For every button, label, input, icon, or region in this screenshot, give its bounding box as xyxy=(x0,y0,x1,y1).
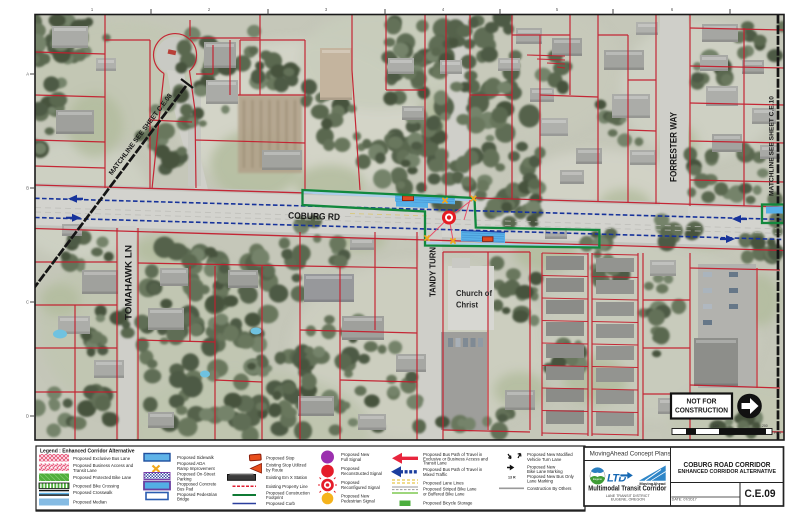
svg-text:Proposed Bike Crossing: Proposed Bike Crossing xyxy=(73,483,120,488)
svg-text:Ramp Improvement: Ramp Improvement xyxy=(177,466,216,471)
svg-text:FORRESTER WAY: FORRESTER WAY xyxy=(669,112,679,182)
svg-text:Pedestrian Signal: Pedestrian Signal xyxy=(341,498,375,503)
svg-text:Transit Lane: Transit Lane xyxy=(423,461,447,466)
svg-text:Proposed Exclusive Bus Lane: Proposed Exclusive Bus Lane xyxy=(73,456,131,461)
svg-text:Feet: Feet xyxy=(774,431,781,435)
svg-text:DATE: 07/2017: DATE: 07/2017 xyxy=(672,498,697,502)
svg-text:13 R: 13 R xyxy=(508,476,516,480)
svg-text:Existing Em X Station: Existing Em X Station xyxy=(266,475,308,480)
svg-text:Existing Property Line: Existing Property Line xyxy=(266,484,308,489)
svg-text:CONSTRUCTION: CONSTRUCTION xyxy=(675,406,728,415)
svg-text:Vehicle Turn Lane: Vehicle Turn Lane xyxy=(527,457,562,462)
svg-text:Full Signal: Full Signal xyxy=(341,457,361,462)
svg-text:Proposed Bicycle Storage: Proposed Bicycle Storage xyxy=(423,501,473,506)
svg-text:Transit Lane: Transit Lane xyxy=(73,468,97,473)
svg-text:Eugene: Eugene xyxy=(593,477,603,481)
svg-text:TOMAHAWK LN: TOMAHAWK LN xyxy=(124,245,134,320)
svg-text:Bus Pad: Bus Pad xyxy=(177,486,194,491)
svg-text:Footprint: Footprint xyxy=(266,495,284,500)
svg-text:Proposed Sidewalk: Proposed Sidewalk xyxy=(177,455,215,460)
svg-text:Legend : Enhanced Corridor Alt: Legend : Enhanced Corridor Alternative xyxy=(40,449,135,455)
svg-text:Bridge: Bridge xyxy=(177,497,190,502)
svg-text:A: A xyxy=(26,72,29,77)
svg-text:100: 100 xyxy=(713,424,719,428)
svg-text:200: 200 xyxy=(762,424,768,428)
svg-text:NOT FOR: NOT FOR xyxy=(687,397,717,406)
svg-text:B: B xyxy=(26,186,29,191)
svg-text:COBURG RD: COBURG RD xyxy=(288,211,341,223)
svg-text:Proposed Protected Bike Lane: Proposed Protected Bike Lane xyxy=(73,475,132,480)
svg-text:Construction By Others: Construction By Others xyxy=(527,486,571,491)
svg-text:MovingAhead Concept Plans: MovingAhead Concept Plans xyxy=(590,451,671,458)
svg-text:Church of: Church of xyxy=(456,289,492,298)
svg-text:or Buffered Bike Lane: or Buffered Bike Lane xyxy=(423,491,465,496)
svg-text:D: D xyxy=(26,414,29,419)
svg-text:Lane Marking: Lane Marking xyxy=(527,479,554,484)
svg-text:Reconfigured Signal: Reconfigured Signal xyxy=(341,485,380,490)
svg-text:Proposed Crosswalk: Proposed Crosswalk xyxy=(73,490,113,495)
svg-text:ENHANCED CORRIDOR ALTERNATIVE: ENHANCED CORRIDOR ALTERNATIVE xyxy=(678,469,776,475)
svg-text:Proposed Curb: Proposed Curb xyxy=(266,501,296,506)
svg-text:Proposed Median: Proposed Median xyxy=(73,500,107,505)
svg-text:Mixed Traffic: Mixed Traffic xyxy=(423,472,448,477)
svg-text:Reconstructed Signal: Reconstructed Signal xyxy=(341,471,382,476)
svg-text:by Route: by Route xyxy=(266,467,284,472)
svg-text:Proposed Lane Lines: Proposed Lane Lines xyxy=(423,480,464,485)
svg-text:Multimodal Transit Corridor: Multimodal Transit Corridor xyxy=(588,486,666,493)
svg-text:MATCHLINE SEE SHEET C.E.10: MATCHLINE SEE SHEET C.E.10 xyxy=(769,96,776,196)
svg-text:EUGENE, OREGON: EUGENE, OREGON xyxy=(611,498,645,502)
svg-text:Proposed Stop: Proposed Stop xyxy=(266,455,295,460)
svg-text:TANDY TURN: TANDY TURN xyxy=(428,247,438,297)
svg-text:C: C xyxy=(26,300,29,305)
svg-text:Christ: Christ xyxy=(456,301,478,310)
svg-text:C.E.09: C.E.09 xyxy=(745,488,776,500)
